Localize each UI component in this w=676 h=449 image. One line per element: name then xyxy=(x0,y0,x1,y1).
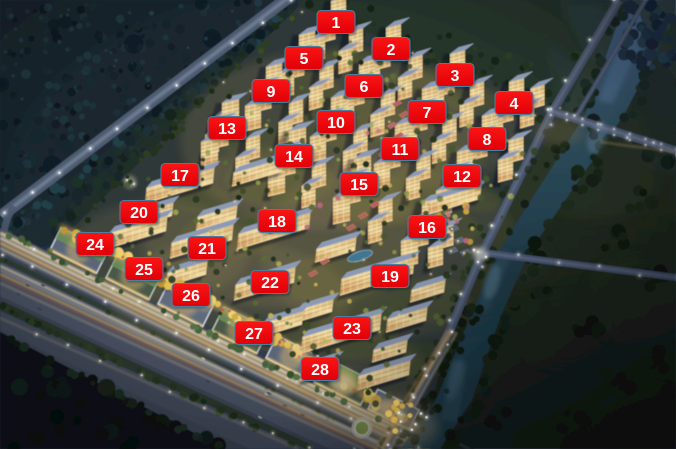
svg-text:21: 21 xyxy=(198,241,216,258)
svg-text:20: 20 xyxy=(130,205,148,222)
svg-text:6: 6 xyxy=(360,79,369,96)
svg-text:12: 12 xyxy=(453,169,471,186)
svg-text:23: 23 xyxy=(343,321,361,338)
svg-text:28: 28 xyxy=(311,362,329,379)
svg-text:24: 24 xyxy=(86,237,104,254)
svg-text:18: 18 xyxy=(268,214,286,231)
svg-text:11: 11 xyxy=(392,142,409,159)
svg-text:26: 26 xyxy=(182,288,200,305)
svg-text:13: 13 xyxy=(218,121,236,138)
svg-text:14: 14 xyxy=(285,149,303,166)
svg-text:2: 2 xyxy=(387,42,396,59)
svg-text:25: 25 xyxy=(135,262,153,279)
svg-text:5: 5 xyxy=(300,51,309,68)
svg-text:8: 8 xyxy=(483,132,492,149)
svg-text:7: 7 xyxy=(423,105,432,122)
svg-text:3: 3 xyxy=(451,68,460,85)
svg-text:15: 15 xyxy=(350,177,368,194)
svg-text:10: 10 xyxy=(327,115,345,132)
svg-text:22: 22 xyxy=(261,275,279,292)
svg-text:1: 1 xyxy=(332,15,341,32)
svg-text:16: 16 xyxy=(418,220,436,237)
svg-text:17: 17 xyxy=(171,168,189,185)
svg-text:19: 19 xyxy=(381,269,399,286)
svg-text:4: 4 xyxy=(510,96,519,113)
svg-text:9: 9 xyxy=(267,84,276,101)
svg-text:27: 27 xyxy=(245,326,263,343)
